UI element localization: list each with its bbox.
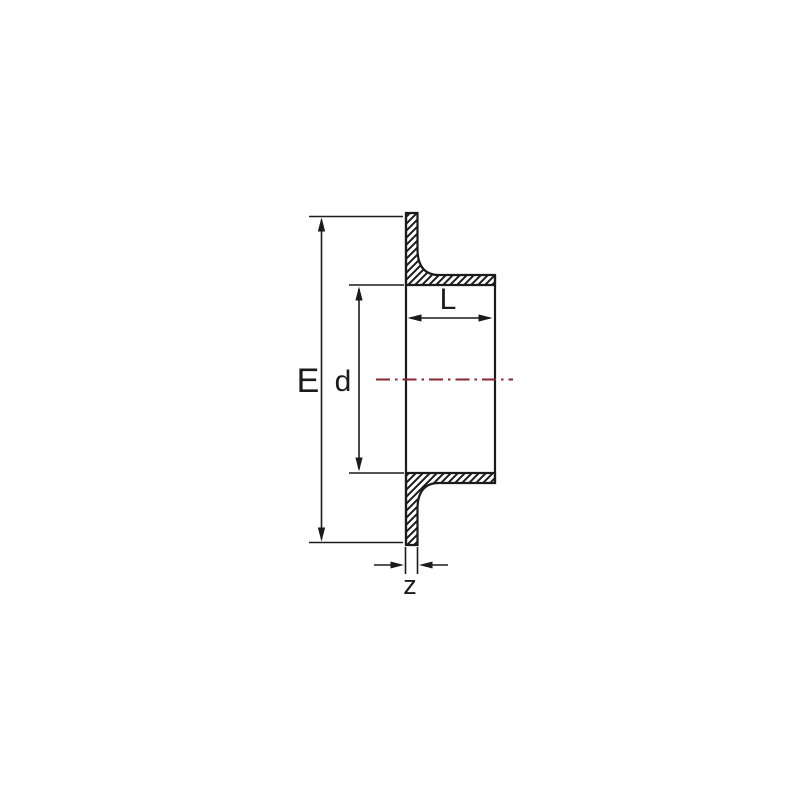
flange-top-section xyxy=(406,213,495,285)
dim-d: d xyxy=(335,285,404,473)
drawing-canvas: E d L z xyxy=(0,0,800,800)
flange-drawing: E d L z xyxy=(0,0,800,800)
dim-E-arrow-down xyxy=(318,528,325,542)
dim-E-label: E xyxy=(297,362,320,400)
dim-L-arrow-right xyxy=(479,314,493,321)
dim-L-arrow-left xyxy=(408,314,422,321)
dim-E-arrow-up xyxy=(318,218,325,232)
dim-L-label: L xyxy=(440,283,457,316)
dim-L: L xyxy=(408,283,493,322)
dim-z: z xyxy=(374,547,448,600)
dim-d-arrow-down xyxy=(355,458,362,472)
flange-bottom-section xyxy=(406,473,495,545)
dim-d-label: d xyxy=(335,365,352,398)
dim-z-arrow-left xyxy=(391,562,405,569)
dim-z-arrow-right xyxy=(419,562,433,569)
dim-d-arrow-up xyxy=(355,287,362,301)
dim-z-label: z xyxy=(403,570,417,600)
